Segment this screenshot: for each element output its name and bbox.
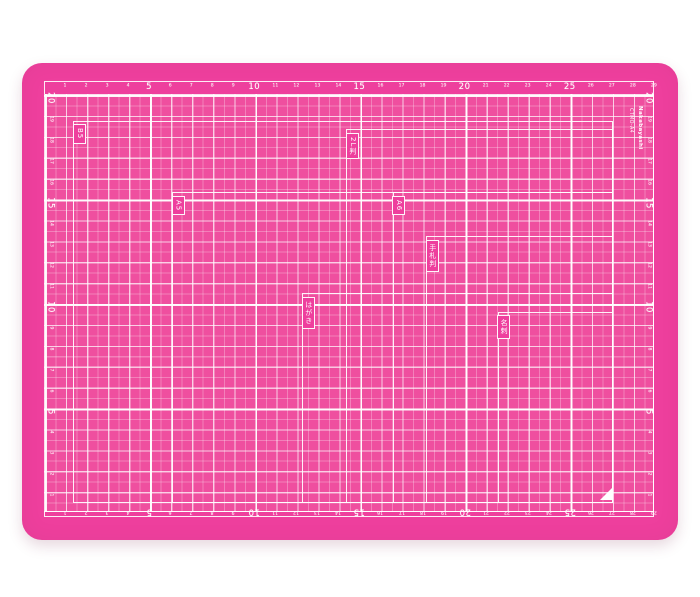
paper-size-guide: 名刺 (498, 312, 614, 503)
paper-size-label: 名刺 (497, 315, 510, 339)
ruler-number: 7 (190, 85, 193, 90)
ruler-number: 20 (46, 92, 55, 104)
ruler-number: 9 (48, 326, 53, 329)
ruler-number: 9 (232, 85, 235, 90)
ruler-number: 10 (644, 301, 653, 313)
ruler-number: 16 (48, 179, 53, 185)
ruler-number: 18 (48, 137, 53, 143)
ruler-number: 16 (378, 85, 384, 90)
ruler-number: 15 (644, 197, 653, 209)
ruler-number: 8 (48, 347, 53, 350)
ruler-number: 13 (646, 241, 651, 247)
ruler-number: 1 (48, 494, 53, 497)
ruler-number: 3 (106, 85, 109, 90)
ruler-number: 4 (48, 431, 53, 434)
product-photo: CTMO-A4 Nakabayashi B52L判A5A6手札判はがき名刺 55… (0, 0, 700, 597)
paper-size-label: はがき (302, 297, 315, 329)
ruler-number: 6 (169, 509, 172, 514)
ruler-number: 24 (546, 85, 552, 90)
ruler-number: 17 (399, 509, 405, 514)
ruler-number: 22 (504, 85, 510, 90)
ruler-number: 3 (48, 452, 53, 455)
ruler-number: 2 (646, 473, 651, 476)
ruler-number: 24 (546, 509, 552, 514)
ruler-number: 3 (646, 452, 651, 455)
ruler-number: 6 (48, 389, 53, 392)
ruler-number: 16 (646, 179, 651, 185)
ruler-number: 12 (48, 262, 53, 268)
ruler-number: 19 (646, 116, 651, 122)
ruler-number: 23 (525, 85, 531, 90)
ruler-number: 11 (272, 509, 278, 514)
ruler-number: 8 (211, 85, 214, 90)
ruler-number: 27 (609, 85, 615, 90)
ruler-number: 13 (314, 509, 320, 514)
ruler-number: 18 (420, 509, 426, 514)
ruler-number: 17 (646, 158, 651, 164)
ruler-number: 10 (46, 301, 55, 313)
ruler-number: 2 (85, 85, 88, 90)
ruler-number: 29 (651, 509, 657, 514)
paper-size-label: 手札判 (426, 240, 439, 272)
ruler-number: 9 (232, 509, 235, 514)
ruler-number: 19 (441, 509, 447, 514)
cutting-mat: CTMO-A4 Nakabayashi B52L判A5A6手札判はがき名刺 55… (22, 63, 678, 540)
ruler-number: 15 (46, 197, 55, 209)
ruler-number: 15 (354, 83, 366, 92)
ruler-number: 6 (169, 85, 172, 90)
ruler-number: 26 (588, 509, 594, 514)
ruler-number: 14 (335, 85, 341, 90)
paper-size-label: A5 (172, 196, 185, 215)
ruler-number: 11 (48, 283, 53, 289)
paper-size-label: A6 (392, 196, 405, 215)
ruler-number: 5 (146, 507, 152, 516)
ruler-number: 18 (420, 85, 426, 90)
ruler-number: 6 (646, 389, 651, 392)
ruler-number: 3 (106, 509, 109, 514)
ruler-number: 12 (293, 509, 299, 514)
ruler-number: 16 (378, 509, 384, 514)
ruler-number: 19 (48, 116, 53, 122)
ruler-number: 15 (354, 507, 366, 516)
ruler-number: 7 (646, 368, 651, 371)
ruler-number: 12 (293, 85, 299, 90)
ruler-number: 17 (399, 85, 405, 90)
ruler-number: 13 (48, 241, 53, 247)
ruler-number: 7 (190, 509, 193, 514)
ruler-number: 5 (146, 83, 152, 92)
ruler-number: 28 (630, 85, 636, 90)
ruler-number: 12 (646, 262, 651, 268)
ruler-number: 21 (483, 85, 489, 90)
ruler-number: 26 (588, 85, 594, 90)
ruler-number: 25 (564, 507, 576, 516)
ruler-number: 8 (646, 347, 651, 350)
ruler-number: 11 (272, 85, 278, 90)
ruler-number: 4 (127, 85, 130, 90)
ruler-number: 11 (646, 283, 651, 289)
ruler-number: 13 (314, 85, 320, 90)
ruler-number: 8 (211, 509, 214, 514)
ruler-number: 14 (48, 220, 53, 226)
ruler-number: 5 (644, 409, 653, 415)
ruler-number: 28 (630, 509, 636, 514)
ruler-number: 14 (335, 509, 341, 514)
ruler-number: 18 (646, 137, 651, 143)
ruler-number: 23 (525, 509, 531, 514)
brand-logo-text: Nakabayashi (636, 106, 642, 150)
ruler-number: 14 (646, 220, 651, 226)
ruler-number: 5 (46, 409, 55, 415)
ruler-number: 20 (459, 507, 471, 516)
ruler-number: 2 (85, 509, 88, 514)
grid-area: CTMO-A4 Nakabayashi B52L判A5A6手札判はがき名刺 (44, 94, 654, 512)
ruler-number: 25 (564, 83, 576, 92)
ruler-number: 4 (646, 431, 651, 434)
ruler-number: 22 (504, 509, 510, 514)
ruler-number: 21 (483, 509, 489, 514)
ruler-number: 1 (64, 509, 67, 514)
ruler-number: 10 (248, 83, 260, 92)
paper-size-label: 2L判 (346, 133, 359, 159)
paper-size-label: B5 (73, 124, 86, 143)
ruler-number: 1 (64, 85, 67, 90)
ruler-number: 29 (651, 85, 657, 90)
ruler-number: 19 (441, 85, 447, 90)
model-number-text: CTMO-A4 (627, 108, 632, 133)
ruler-number: 2 (48, 473, 53, 476)
ruler-number: 27 (609, 509, 615, 514)
ruler-number: 7 (48, 368, 53, 371)
ruler-number: 20 (644, 92, 653, 104)
ruler-number: 17 (48, 158, 53, 164)
ruler-number: 1 (646, 494, 651, 497)
ruler-number: 4 (127, 509, 130, 514)
ruler-number: 9 (646, 326, 651, 329)
ruler-number: 10 (248, 507, 260, 516)
ruler-number: 20 (459, 83, 471, 92)
